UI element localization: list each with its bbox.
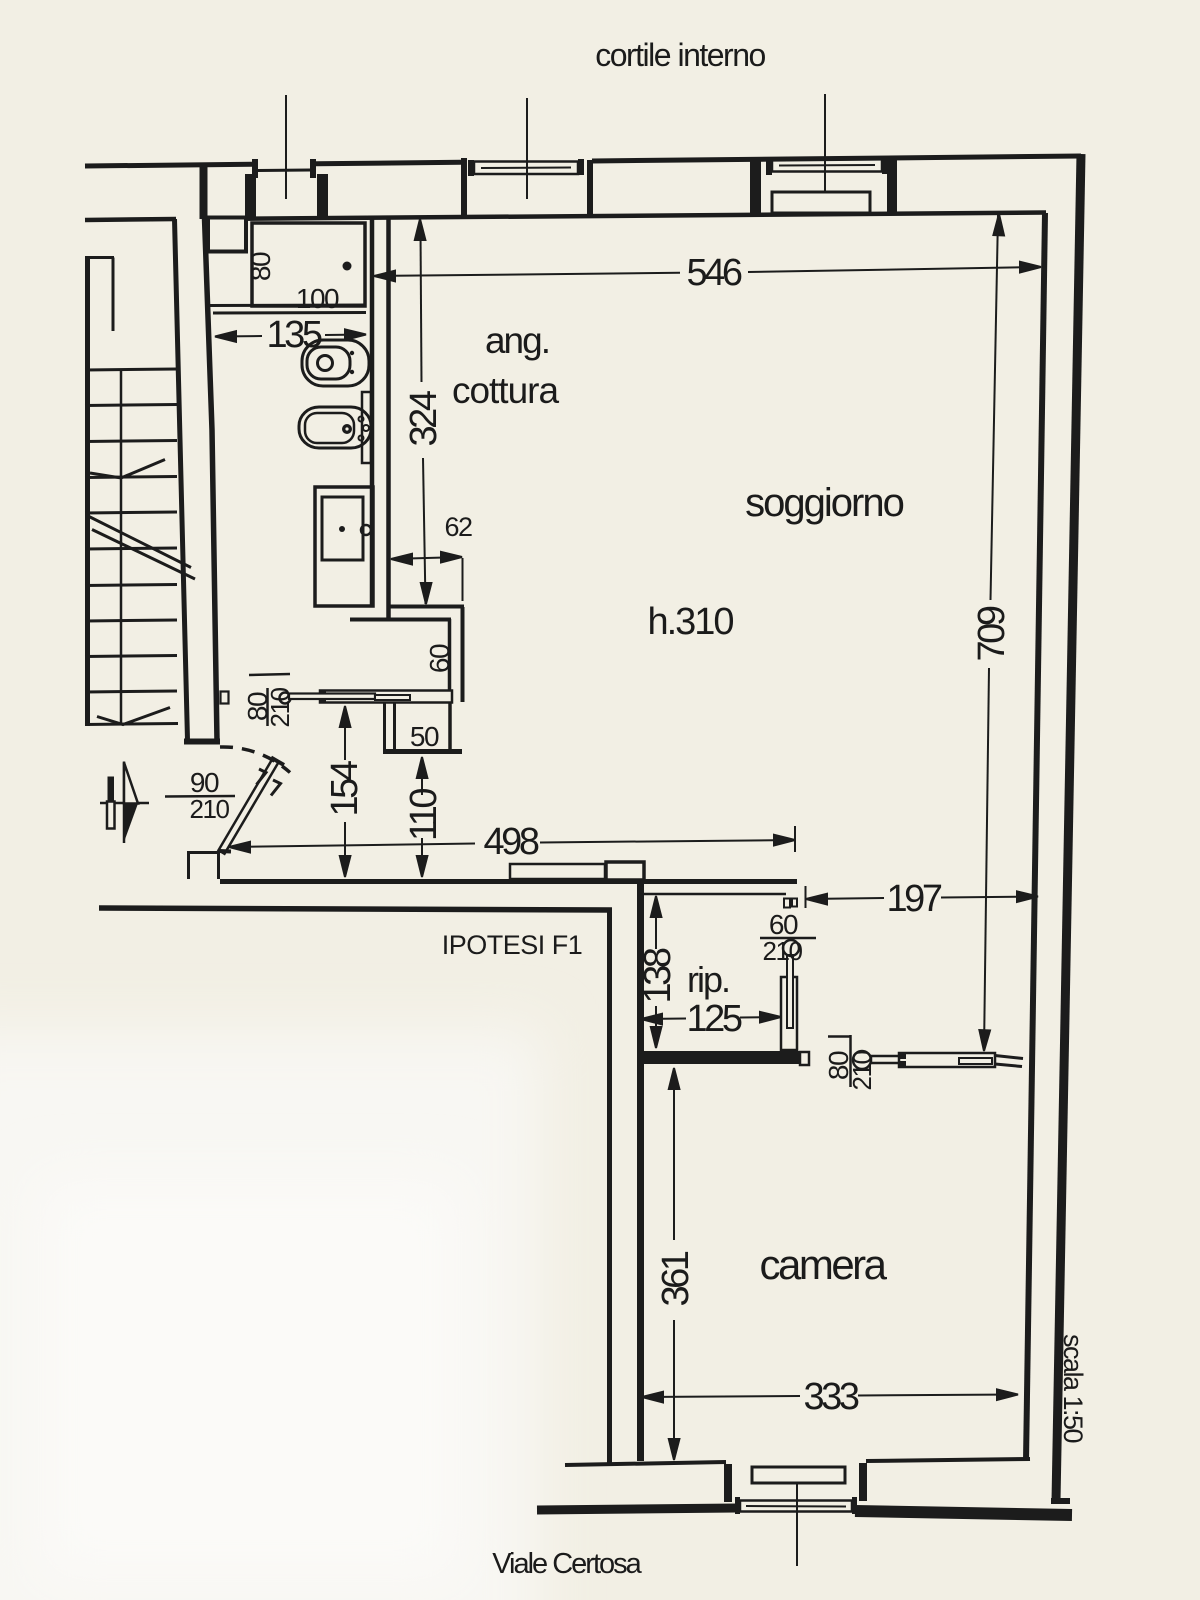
svg-text:210: 210 [265,688,295,728]
svg-text:scala 1:50: scala 1:50 [1058,1334,1088,1443]
svg-text:324: 324 [403,390,445,446]
svg-text:210: 210 [847,1051,877,1091]
svg-text:100: 100 [296,283,339,314]
svg-text:IPOTESI F1: IPOTESI F1 [442,930,583,960]
svg-text:135: 135 [267,314,322,356]
svg-text:80: 80 [245,252,276,281]
svg-text:ang.: ang. [485,320,549,361]
svg-text:rip.: rip. [687,959,729,1000]
svg-text:154: 154 [324,760,366,816]
svg-text:210: 210 [763,936,803,966]
svg-text:62: 62 [444,512,472,542]
svg-text:cottura: cottura [452,370,560,411]
svg-text:50: 50 [410,721,439,752]
svg-text:361: 361 [655,1251,697,1306]
svg-text:333: 333 [804,1376,859,1418]
svg-text:125: 125 [687,998,742,1040]
svg-text:498: 498 [484,821,539,863]
svg-text:60: 60 [424,644,455,673]
svg-text:138: 138 [637,948,679,1003]
svg-text:Viale Certosa: Viale Certosa [492,1548,642,1580]
svg-text:210: 210 [190,794,230,824]
svg-text:cortile interno: cortile interno [595,37,765,73]
svg-text:197: 197 [887,878,942,920]
svg-text:camera: camera [759,1241,887,1288]
svg-text:546: 546 [687,252,742,294]
svg-text:h.310: h.310 [647,601,733,643]
svg-text:709: 709 [971,606,1013,661]
svg-text:110: 110 [403,789,445,841]
svg-text:soggiorno: soggiorno [745,481,903,525]
